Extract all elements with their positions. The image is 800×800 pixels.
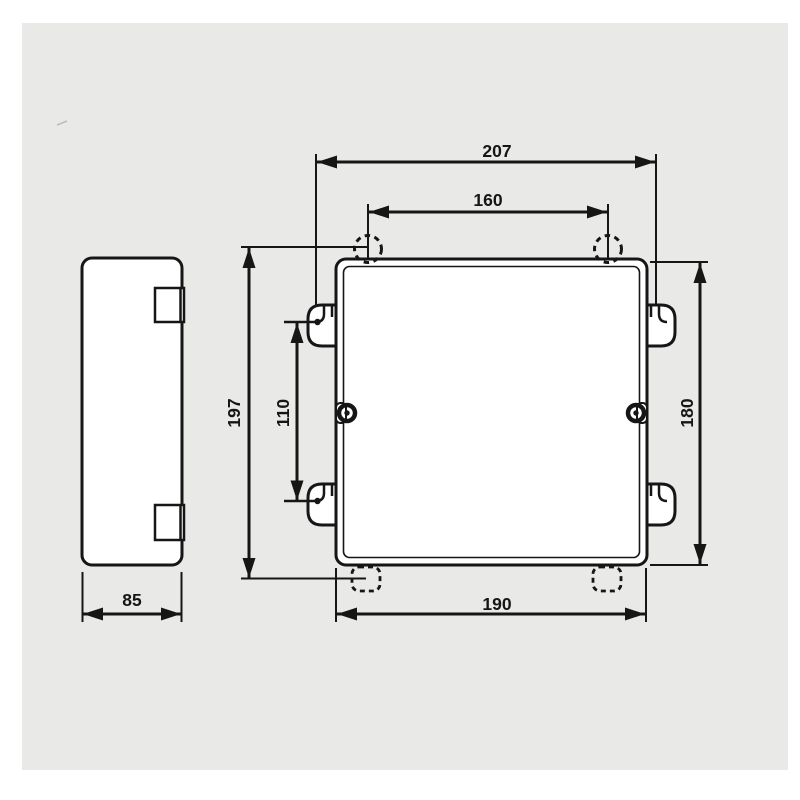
dim-180-label: 180 (677, 398, 697, 427)
screw-right-center (633, 410, 638, 415)
front-view (308, 236, 675, 592)
dim-110-dot-bottom (314, 498, 320, 504)
dim-207-label: 207 (482, 141, 511, 161)
dim-110-dot-top (314, 319, 320, 325)
front-view-outline (336, 259, 647, 565)
screw-left-center (344, 410, 349, 415)
dim-depth-label: 85 (122, 590, 142, 610)
dim-160-label: 160 (473, 190, 502, 210)
page: 85 (0, 0, 800, 800)
dim-110-label: 110 (273, 399, 293, 427)
dim-197-label: 197 (224, 398, 244, 427)
technical-drawing: 85 (0, 0, 800, 800)
side-view (82, 258, 184, 565)
dim-190-label: 190 (482, 594, 511, 614)
